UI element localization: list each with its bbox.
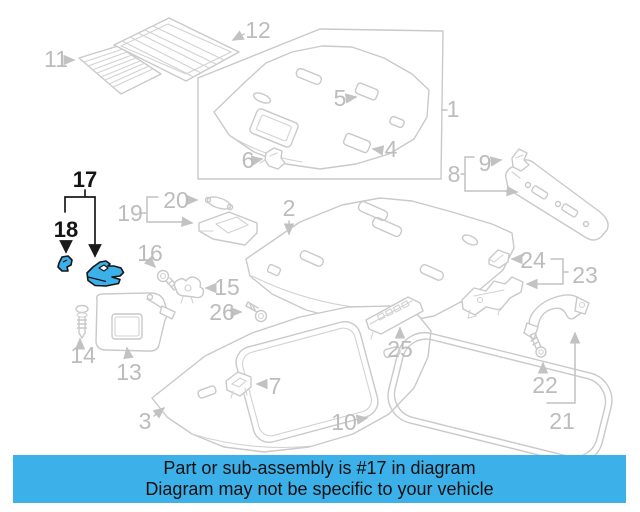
callout-22: 22: [532, 372, 558, 398]
part-20-bulb: [206, 195, 233, 212]
part-13-sun-visor: [96, 293, 175, 351]
callout-3: 3: [139, 408, 152, 434]
part-15-clip: [174, 277, 203, 303]
callout-12: 12: [245, 17, 271, 43]
callout-10: 10: [331, 409, 357, 435]
callout-13: 13: [116, 359, 142, 385]
callout-14: 14: [70, 342, 96, 368]
banner-line-1: Part or sub-assembly is #17 in diagram: [163, 458, 475, 479]
callout-21: 21: [549, 408, 575, 434]
callout-11: 11: [44, 46, 68, 72]
part-8-rear-trim: [506, 160, 608, 240]
callout-23: 23: [572, 262, 598, 288]
callout-19: 19: [117, 200, 143, 226]
callout-2: 2: [283, 195, 296, 221]
highlight-banner: Part or sub-assembly is #17 in diagram D…: [13, 455, 626, 503]
callout-7: 7: [269, 373, 282, 399]
parts-diagram: 1 2 3 4 5 6 7 8 9 10 11 12 13 14 15 16 1…: [0, 0, 640, 512]
callout-20: 20: [163, 187, 189, 213]
callout-8: 8: [448, 161, 461, 187]
callout-16: 16: [137, 240, 163, 266]
callout-25: 25: [387, 336, 413, 362]
callout-26: 26: [209, 299, 235, 325]
callout-6: 6: [242, 147, 255, 173]
callout-4: 4: [385, 136, 398, 162]
part-18-clip-highlighted: [58, 256, 72, 271]
callout-15: 15: [214, 274, 240, 300]
callout-1: 1: [447, 96, 460, 122]
callout-9: 9: [479, 150, 492, 176]
part-21-grab-handle: [524, 295, 589, 339]
part-26-pin: [246, 302, 267, 322]
part-14-screw: [76, 306, 88, 339]
banner-line-2: Diagram may not be specific to your vehi…: [145, 479, 493, 500]
callout-17: 17: [73, 167, 97, 192]
part-17-visor-bracket-highlighted: [87, 261, 124, 286]
callout-5: 5: [334, 85, 347, 111]
callout-18: 18: [54, 217, 78, 242]
callout-24: 24: [520, 247, 546, 273]
part-19-lamp-housing: [199, 212, 257, 245]
